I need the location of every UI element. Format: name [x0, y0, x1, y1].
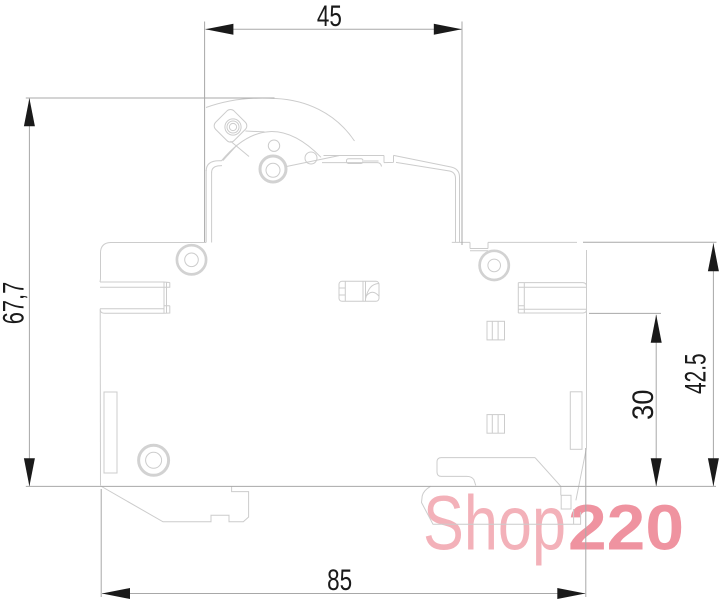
svg-text:Shop: Shop: [423, 481, 566, 567]
svg-text:42.5: 42.5: [680, 353, 713, 394]
svg-text:67,7: 67,7: [0, 282, 30, 325]
svg-text:30: 30: [627, 390, 660, 421]
svg-text:85: 85: [327, 564, 352, 597]
svg-text:45: 45: [317, 0, 342, 33]
